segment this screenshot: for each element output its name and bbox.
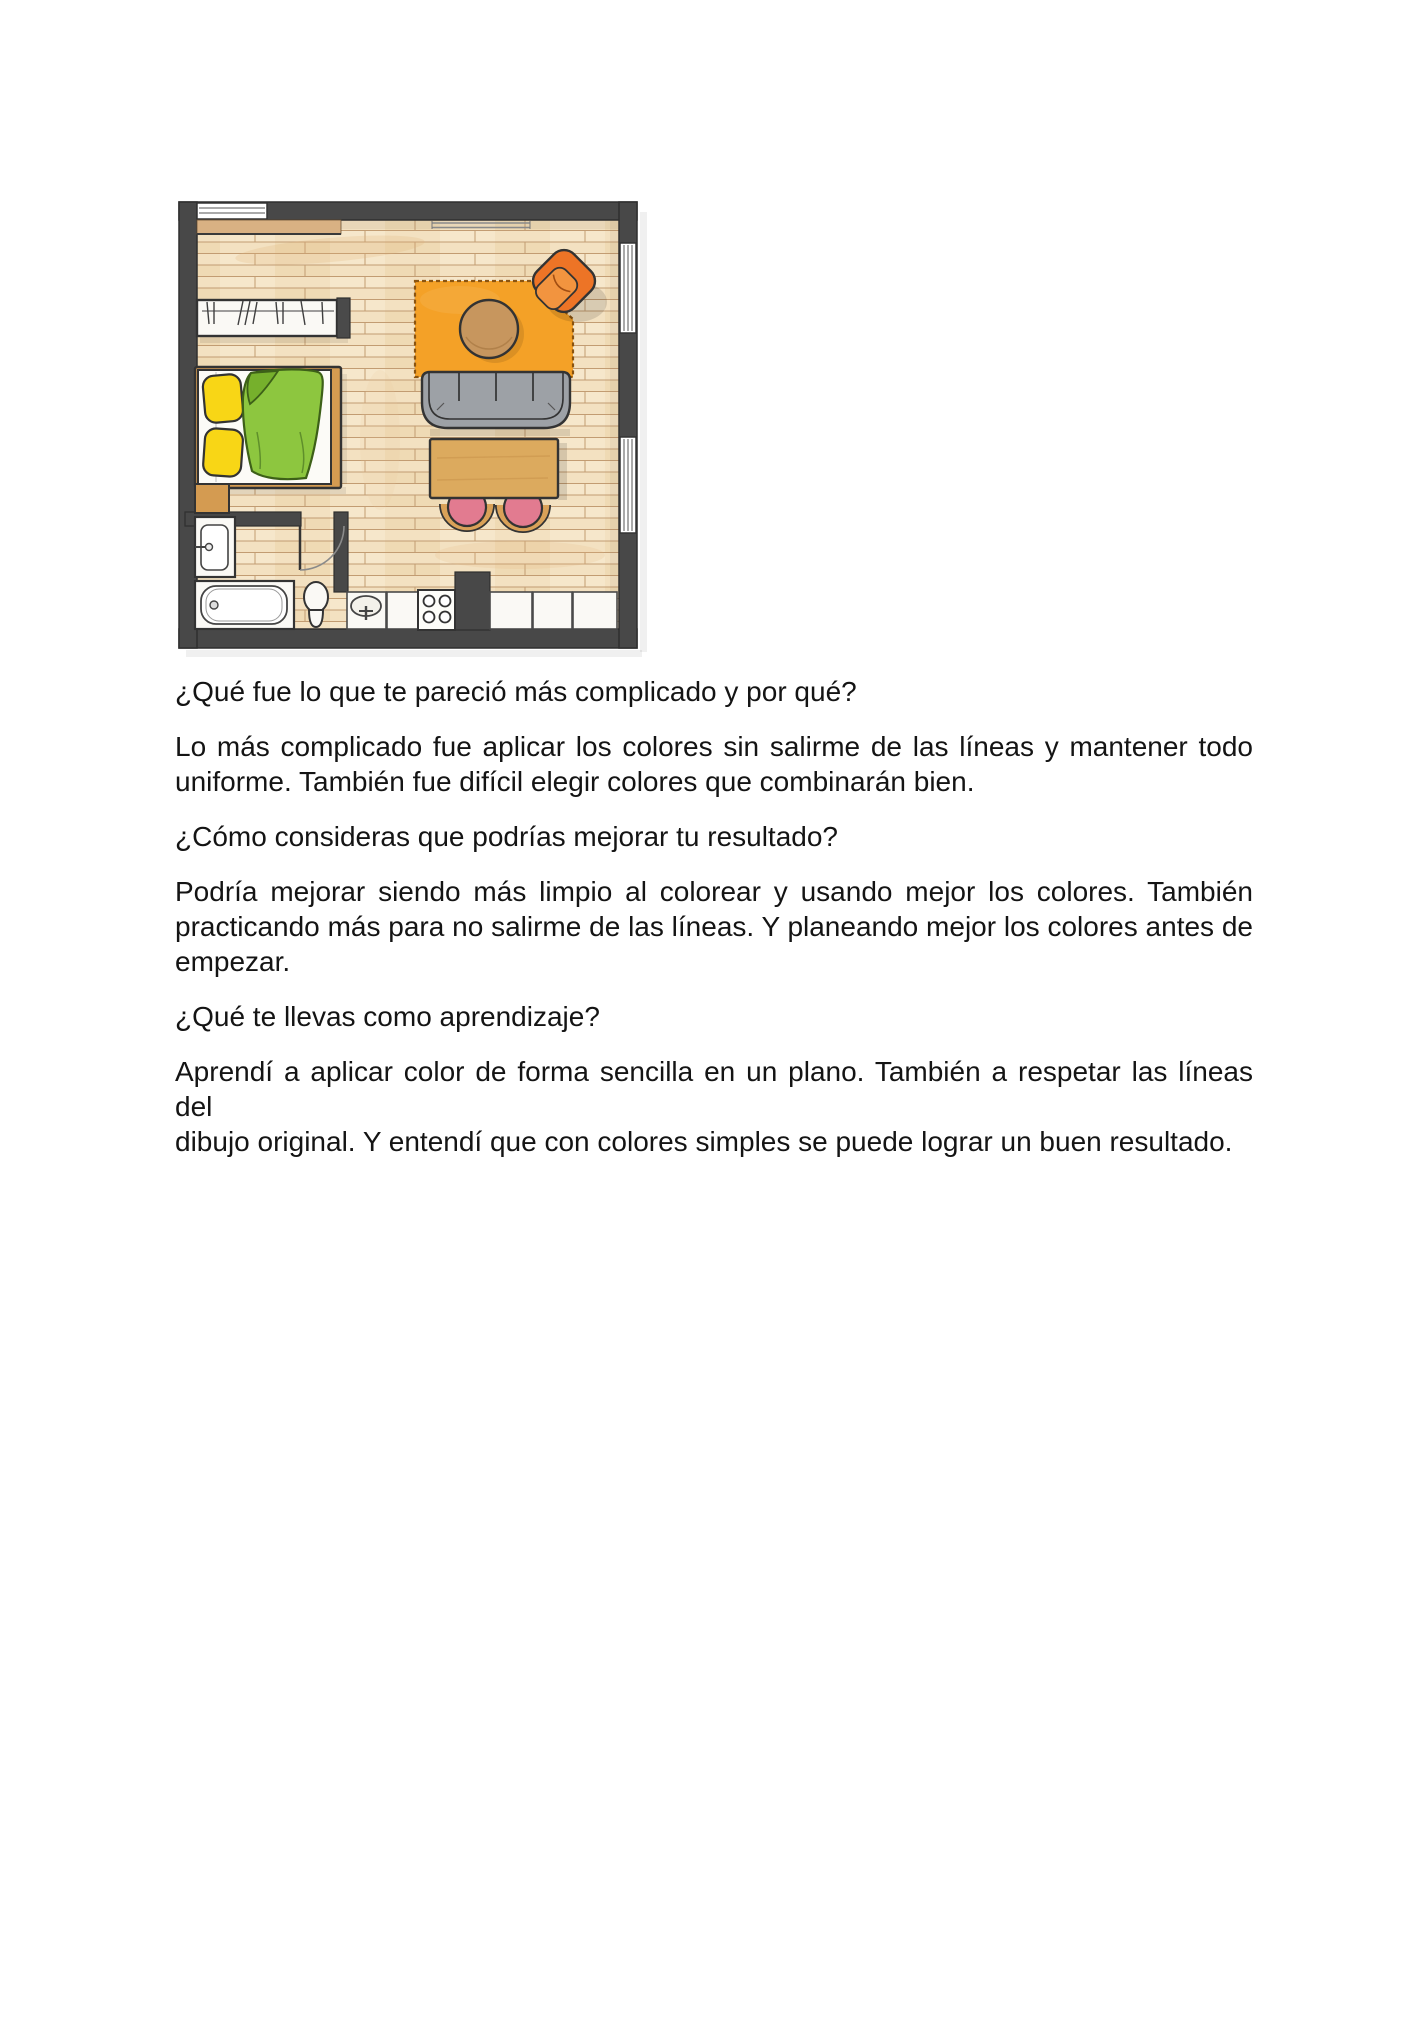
answer-2-line-3: empezar. [175, 944, 1253, 979]
document-page: ¿Qué fue lo que te pareció más complicad… [0, 0, 1428, 2028]
pillow [202, 428, 243, 478]
floor-plan-image [0, 0, 1428, 680]
answer-1-line-2: uniforme. También fue difícil elegir col… [175, 764, 1253, 799]
stove [418, 590, 455, 630]
answer-1: Lo más complicado fue aplicar los colore… [175, 729, 1253, 799]
window-right-upper [620, 243, 636, 333]
pillow [202, 373, 244, 423]
bathtub [195, 581, 294, 629]
window-right-lower [620, 437, 636, 533]
question-1: ¿Qué fue lo que te pareció más complicad… [175, 674, 1253, 709]
question-3: ¿Qué te llevas como aprendizaje? [175, 999, 1253, 1034]
bed [195, 367, 347, 494]
answer-2-line-2: practicando más para no salirme de las l… [175, 909, 1253, 944]
answer-3-line-1: Aprendí a aplicar color de forma sencill… [175, 1054, 1253, 1124]
question-2-line: ¿Cómo consideras que podrías mejorar tu … [175, 819, 1253, 854]
answer-1-line-1: Lo más complicado fue aplicar los colore… [175, 729, 1253, 764]
bathroom-sink [195, 517, 235, 577]
document-text: ¿Qué fue lo que te pareció más complicad… [175, 674, 1253, 1179]
window-top [197, 203, 267, 219]
question-1-line: ¿Qué fue lo que te pareció más complicad… [175, 674, 1253, 709]
wardrobe [197, 298, 350, 343]
answer-2-line-1: Podría mejorar siendo más limpio al colo… [175, 874, 1253, 909]
answer-3: Aprendí a aplicar color de forma sencill… [175, 1054, 1253, 1159]
answer-2: Podría mejorar siendo más limpio al colo… [175, 874, 1253, 979]
question-2: ¿Cómo consideras que podrías mejorar tu … [175, 819, 1253, 854]
answer-3-line-2: dibujo original. Y entendí que con color… [175, 1124, 1253, 1159]
bench [195, 484, 229, 513]
question-3-line: ¿Qué te llevas como aprendizaje? [175, 999, 1253, 1034]
shelf-band [197, 220, 341, 234]
sofa [422, 372, 570, 436]
kitchen-wall-bump [455, 572, 490, 630]
dining-table [430, 439, 567, 500]
